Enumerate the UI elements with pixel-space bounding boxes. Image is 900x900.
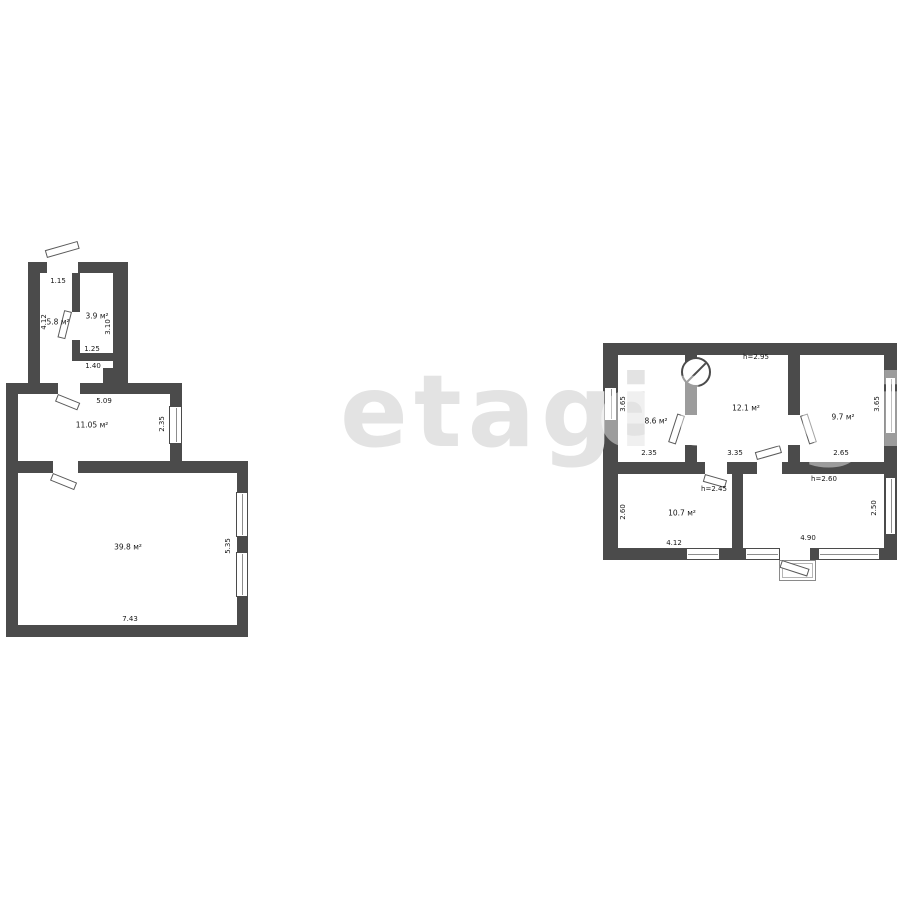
dimension-label: 2.35 bbox=[158, 416, 166, 432]
dimension-label: 3.35 bbox=[727, 449, 743, 457]
room-area-label: 12.1 м² bbox=[732, 404, 760, 413]
dimension-label: 2.35 bbox=[641, 449, 657, 457]
room-area-label: 9.7 м² bbox=[832, 413, 855, 422]
wall-segment bbox=[72, 273, 80, 312]
wall-segment bbox=[6, 383, 18, 473]
dimension-label: 2.50 bbox=[870, 500, 878, 516]
door-leaf bbox=[45, 241, 80, 258]
wall-segment bbox=[80, 383, 182, 394]
room-area-label: 5.8 м² bbox=[47, 318, 70, 327]
wall-segment bbox=[28, 262, 47, 273]
window-symbol bbox=[686, 548, 720, 560]
door-leaf bbox=[55, 394, 80, 410]
room-area-label: 39.8 м² bbox=[114, 543, 142, 552]
window-symbol bbox=[236, 492, 248, 537]
wall-segment bbox=[720, 548, 745, 560]
dimension-label: 1.40 bbox=[85, 362, 101, 370]
wall-segment bbox=[28, 262, 40, 394]
wall-segment bbox=[113, 262, 128, 368]
dimension-label: 7.43 bbox=[122, 615, 138, 623]
wall-segment bbox=[810, 548, 818, 560]
dimension-label: 3.10 bbox=[104, 319, 112, 335]
ceiling-height-label: h=2.60 bbox=[811, 475, 837, 483]
dimension-label: 5.09 bbox=[96, 397, 112, 405]
wall-segment bbox=[72, 353, 113, 361]
room-area-label: 10.7 м² bbox=[668, 509, 696, 518]
dimension-label: 5.35 bbox=[224, 538, 232, 554]
wall-segment bbox=[237, 461, 248, 637]
window-symbol bbox=[818, 548, 880, 560]
window-symbol bbox=[236, 552, 248, 597]
dimension-label: 2.65 bbox=[833, 449, 849, 457]
floorplan-canvas: 1.15 4.12 5.8 м² 3.9 м² 3.10 1.25 1.40 5… bbox=[0, 0, 900, 900]
window-symbol bbox=[169, 406, 182, 444]
room-area-label: 8.6 м² bbox=[645, 417, 668, 426]
dimension-label: 3.65 bbox=[873, 396, 881, 412]
wall-segment bbox=[732, 462, 743, 560]
dimension-label: 2.60 bbox=[619, 504, 627, 520]
wall-segment bbox=[6, 625, 248, 637]
dimension-label: 3.65 bbox=[619, 396, 627, 412]
dimension-label: 4.12 bbox=[666, 539, 682, 547]
wall-segment bbox=[880, 548, 897, 560]
dimension-label: 4.90 bbox=[800, 534, 816, 542]
window-symbol bbox=[745, 548, 780, 560]
ceiling-height-label: h=2.95 bbox=[743, 353, 769, 361]
wall-segment bbox=[603, 548, 686, 560]
wall-segment bbox=[6, 461, 18, 637]
dimension-label: 1.25 bbox=[84, 345, 100, 353]
ceiling-height-label: h=2.45 bbox=[701, 485, 727, 493]
window-symbol bbox=[885, 477, 896, 535]
dimension-label: 1.15 bbox=[50, 277, 66, 285]
room-area-label: 11.05 м² bbox=[76, 421, 109, 430]
door-leaf bbox=[50, 473, 77, 490]
wall-segment bbox=[78, 461, 248, 473]
